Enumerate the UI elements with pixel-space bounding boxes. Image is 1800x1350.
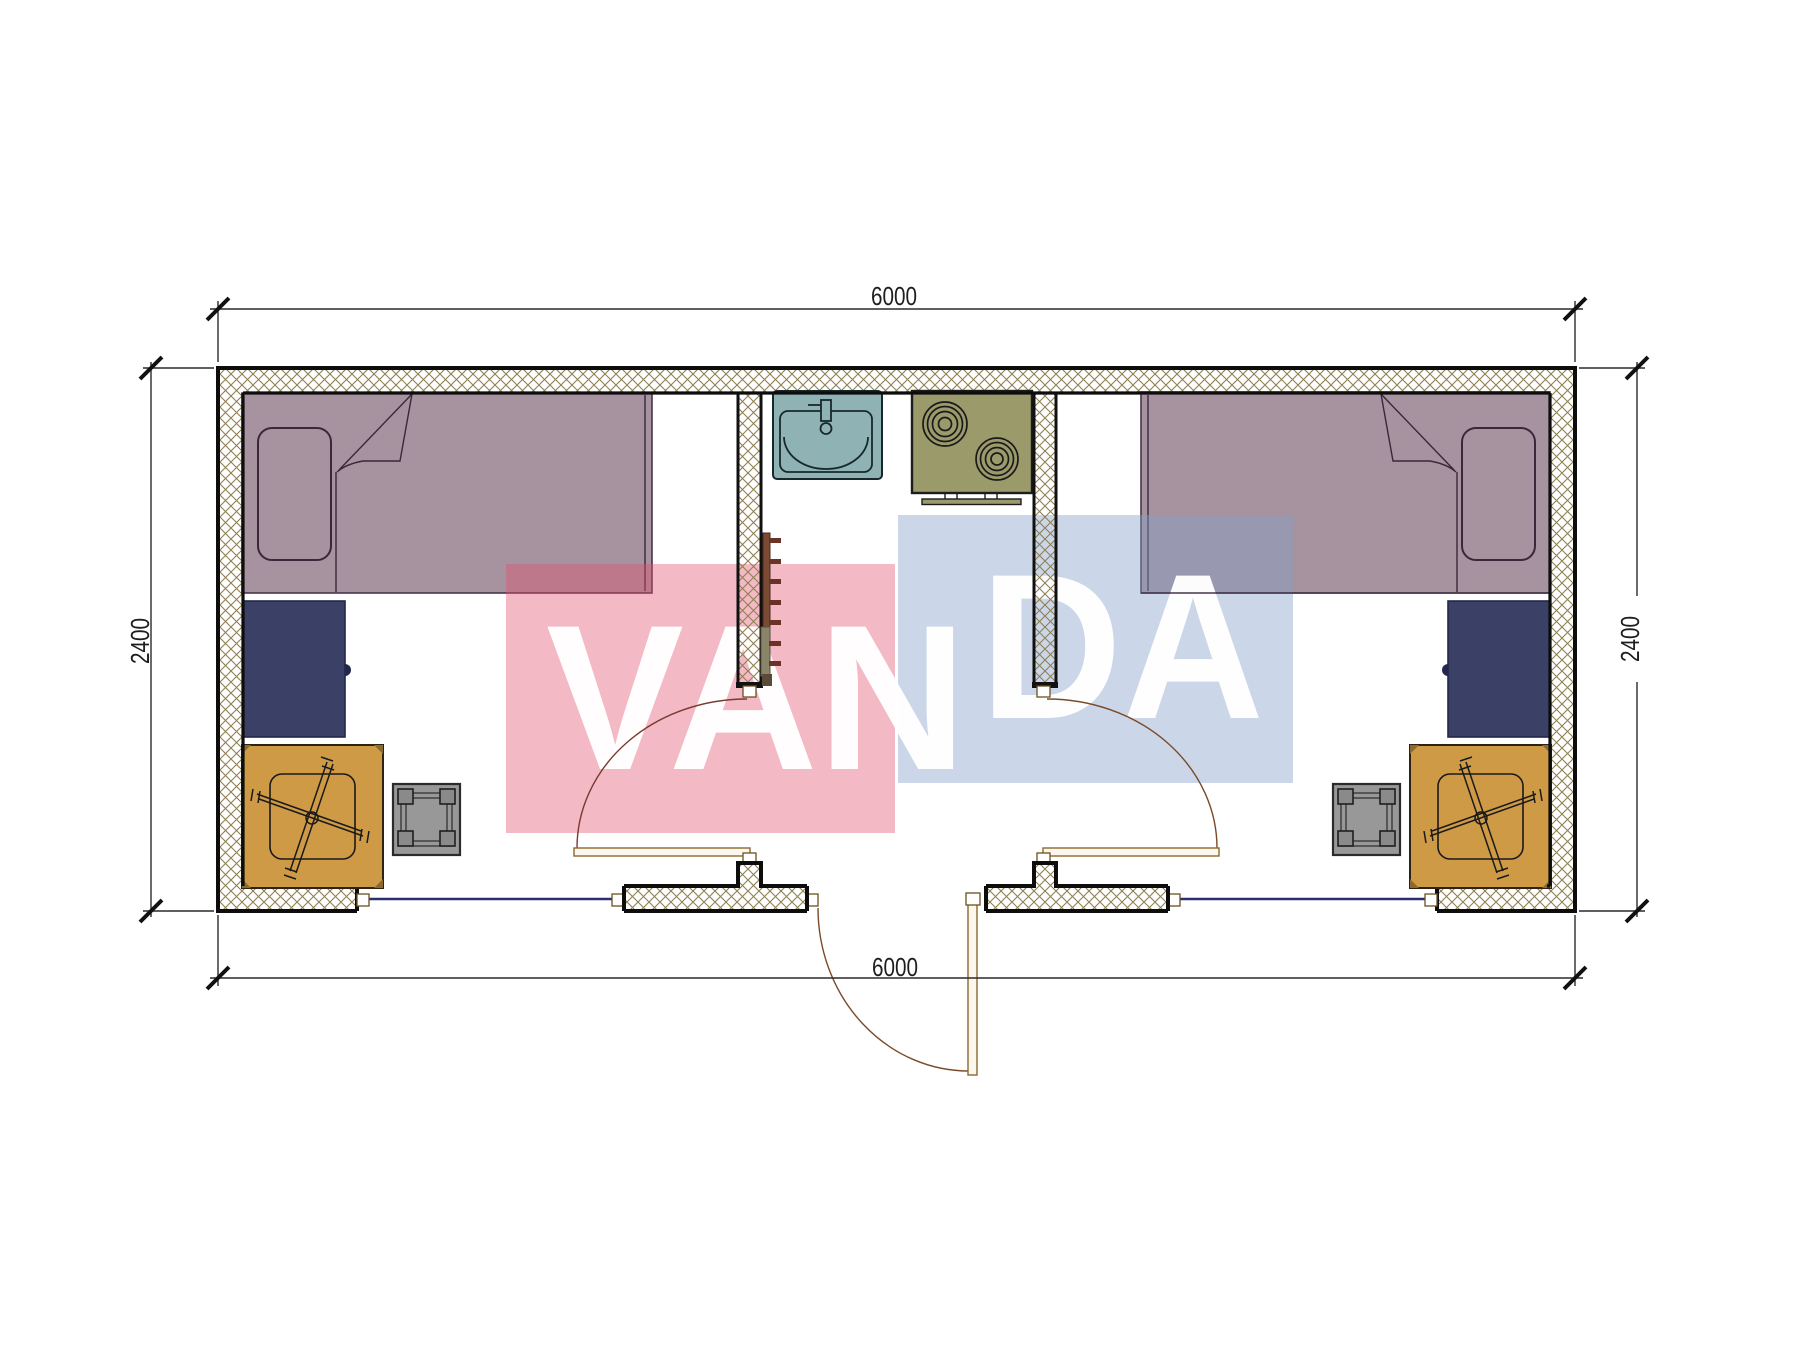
svg-text:6000: 6000	[872, 952, 918, 982]
svg-text:2400: 2400	[125, 618, 155, 664]
svg-text:2400: 2400	[1615, 616, 1645, 662]
svg-text:DA: DA	[980, 531, 1264, 762]
svg-text:6000: 6000	[871, 281, 917, 311]
